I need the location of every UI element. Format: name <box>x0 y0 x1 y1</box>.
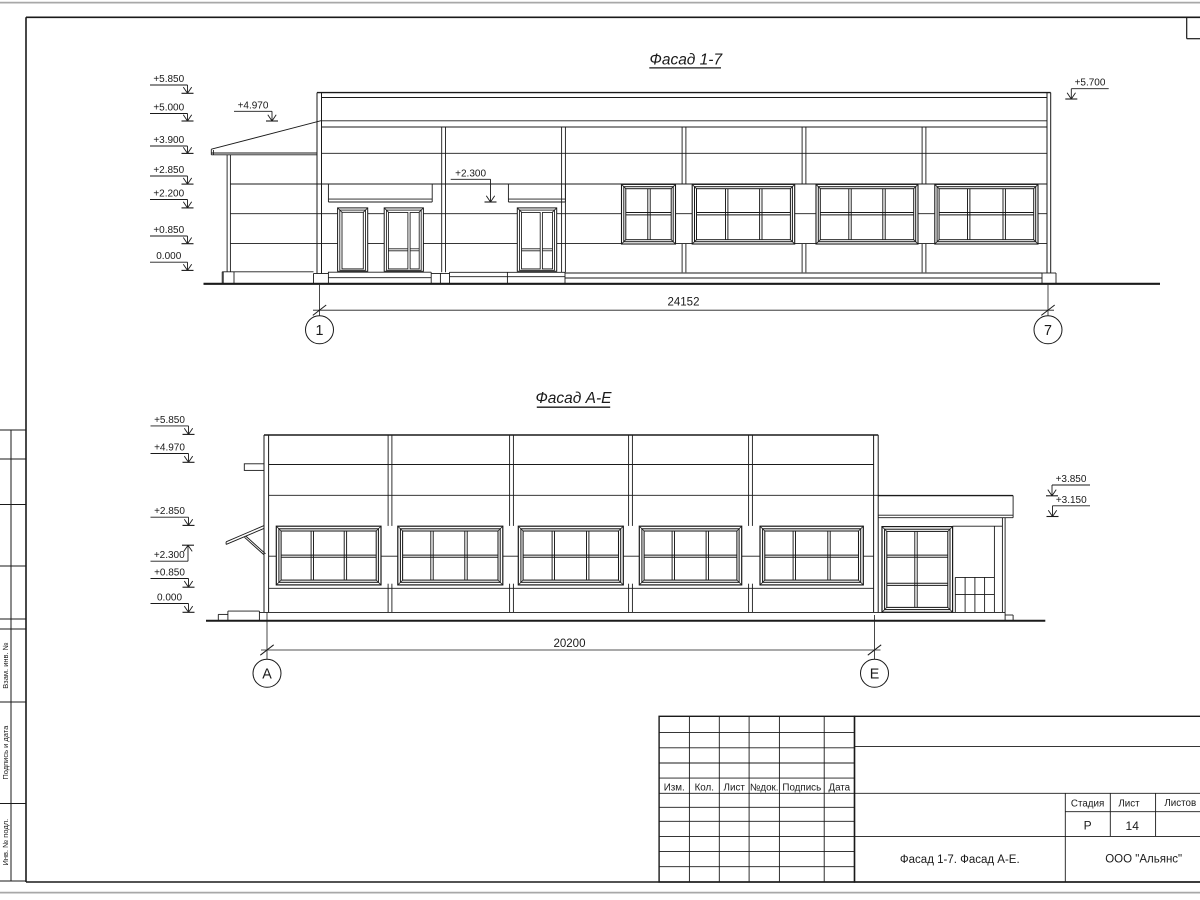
svg-text:Стадия: Стадия <box>1071 799 1104 810</box>
svg-text:0.000: 0.000 <box>157 593 182 604</box>
svg-text:Изм.: Изм. <box>664 782 685 793</box>
svg-text:+3.150: +3.150 <box>1056 495 1087 506</box>
svg-text:+4.970: +4.970 <box>238 100 269 111</box>
svg-text:Листов: Листов <box>1164 798 1196 809</box>
svg-text:Фасад 1-7. Фасад А-Е.: Фасад 1-7. Фасад А-Е. <box>900 854 1020 866</box>
svg-text:Р: Р <box>1084 819 1092 833</box>
svg-text:+0.850: +0.850 <box>153 225 184 236</box>
svg-text:7: 7 <box>1044 323 1052 339</box>
svg-text:+2.300: +2.300 <box>455 168 486 179</box>
svg-text:0.000: 0.000 <box>156 251 181 262</box>
svg-text:+5.700: +5.700 <box>1075 78 1106 89</box>
svg-text:Е: Е <box>870 666 880 682</box>
svg-text:+3.850: +3.850 <box>1056 474 1087 485</box>
svg-text:Лист: Лист <box>1118 799 1140 810</box>
svg-text:Фасад 1-7: Фасад 1-7 <box>650 52 724 69</box>
svg-text:+5.850: +5.850 <box>154 415 185 426</box>
svg-text:Взам. инв. №: Взам. инв. № <box>1 642 10 688</box>
svg-text:+4.970: +4.970 <box>154 443 185 454</box>
svg-text:№док.: №док. <box>750 782 779 793</box>
svg-text:+5.850: +5.850 <box>153 74 184 85</box>
svg-text:24152: 24152 <box>668 297 700 309</box>
svg-text:+2.300: +2.300 <box>154 550 185 561</box>
svg-text:Подпись: Подпись <box>782 782 821 793</box>
svg-text:Фасад А-Е: Фасад А-Е <box>535 390 612 407</box>
svg-text:1: 1 <box>316 323 324 339</box>
svg-text:+2.200: +2.200 <box>153 189 184 200</box>
svg-text:Инв. № подл.: Инв. № подл. <box>1 819 10 866</box>
svg-text:+3.900: +3.900 <box>153 135 184 146</box>
svg-text:ООО "Альянс": ООО "Альянс" <box>1105 854 1182 866</box>
svg-text:+2.850: +2.850 <box>154 506 185 517</box>
svg-text:А: А <box>262 666 272 682</box>
svg-text:+5.000: +5.000 <box>153 103 184 114</box>
svg-text:Дата: Дата <box>828 782 850 793</box>
svg-text:+2.850: +2.850 <box>153 165 184 176</box>
svg-text:Лист: Лист <box>724 782 746 793</box>
svg-text:20200: 20200 <box>554 638 586 650</box>
svg-text:Подпись и дата: Подпись и дата <box>1 725 10 780</box>
svg-text:14: 14 <box>1126 819 1140 833</box>
svg-text:+0.850: +0.850 <box>154 568 185 579</box>
svg-text:Кол.: Кол. <box>695 782 714 793</box>
